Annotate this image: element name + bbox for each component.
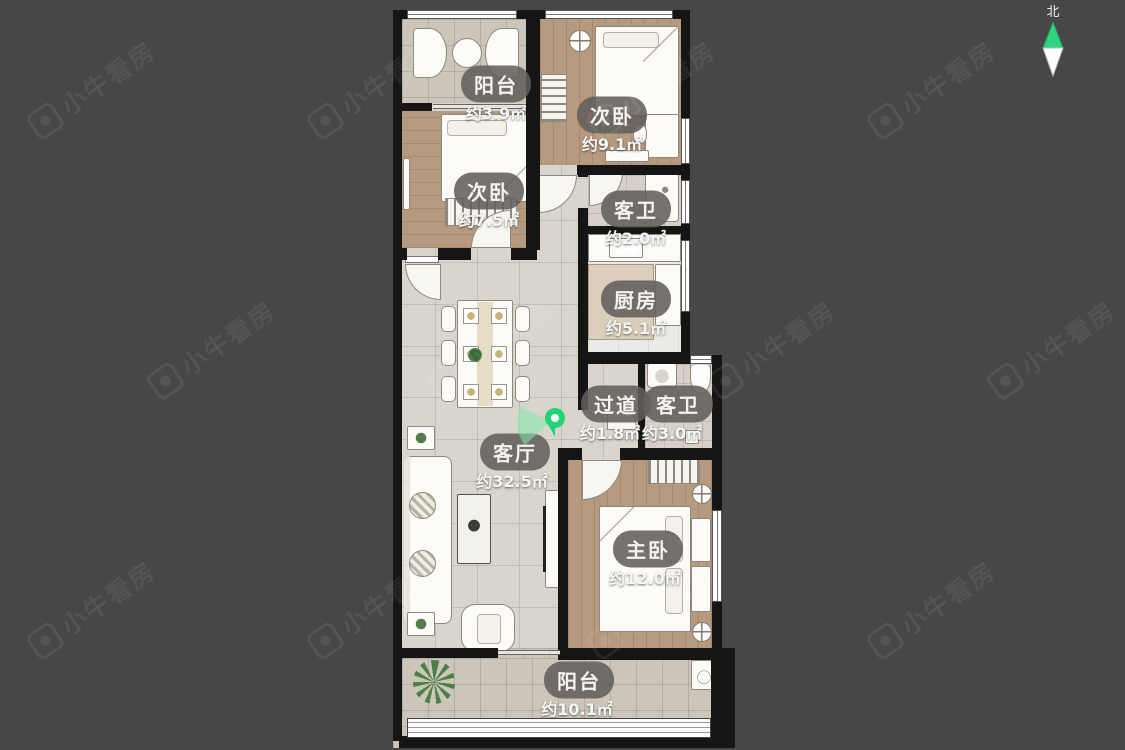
watermark-logo-icon bbox=[305, 620, 347, 662]
position-pin[interactable] bbox=[513, 393, 577, 457]
wall bbox=[526, 10, 540, 250]
room-label-bedroom-top: 次卧 bbox=[577, 97, 647, 134]
watermark-logo-icon bbox=[25, 620, 67, 662]
room-label-bath-top: 客卫 bbox=[601, 191, 671, 228]
watermark-logo-icon bbox=[145, 360, 187, 402]
window bbox=[681, 240, 690, 312]
plate-icon bbox=[491, 384, 507, 400]
watermark: 小牛看房 bbox=[143, 292, 282, 405]
cushion-icon bbox=[409, 492, 436, 519]
room-area-bath-top: 约2.0㎡ bbox=[606, 225, 666, 249]
wall bbox=[558, 648, 722, 660]
basin-icon bbox=[452, 38, 482, 68]
window bbox=[681, 180, 690, 224]
watermark: 小牛看房 bbox=[23, 32, 162, 145]
watermark-text: 小牛看房 bbox=[1013, 292, 1122, 383]
wall bbox=[511, 248, 537, 260]
blanket-fold-icon bbox=[643, 26, 679, 62]
wall bbox=[438, 248, 471, 260]
bookshelf-icon bbox=[541, 74, 567, 122]
wall bbox=[558, 460, 568, 658]
wall bbox=[620, 448, 722, 460]
watermark-text: 小牛看房 bbox=[53, 32, 162, 123]
room-area-balcony-top: 约3.9㎡ bbox=[466, 100, 526, 124]
balcony-window-band bbox=[407, 718, 711, 738]
tv-icon bbox=[543, 506, 546, 572]
view-cone-icon bbox=[517, 407, 551, 445]
wall-shelf-icon bbox=[403, 158, 410, 210]
lounge-cushion-icon bbox=[477, 614, 501, 644]
washbasin-icon bbox=[647, 362, 677, 388]
watermark-logo-icon bbox=[865, 620, 907, 662]
watermark: 小牛看房 bbox=[983, 292, 1122, 405]
room-label-balcony-bottom: 阳台 bbox=[544, 662, 614, 699]
nightstand-icon bbox=[691, 518, 711, 562]
window bbox=[712, 510, 722, 602]
room-label-balcony-top: 阳台 bbox=[461, 66, 531, 103]
watermark-logo-icon bbox=[985, 360, 1027, 402]
watermark-text: 小牛看房 bbox=[893, 552, 1002, 643]
floorplan-screen: 阳台 约3.9㎡ 次卧 约9.1㎡ 次卧 约7.5㎡ 客卫 约2.0㎡ 厨房 约… bbox=[0, 0, 1125, 750]
north-label: 北 bbox=[1036, 6, 1070, 20]
plate-icon bbox=[463, 308, 479, 324]
washer-icon bbox=[413, 28, 447, 78]
wall bbox=[577, 165, 690, 175]
room-area-bath-mid: 约3.0㎡ bbox=[642, 420, 702, 444]
ac-unit-icon bbox=[692, 622, 712, 642]
room-label-bath-mid: 客卫 bbox=[643, 386, 713, 423]
sliding-door bbox=[498, 650, 560, 655]
wall bbox=[402, 648, 498, 658]
plant-pot-icon bbox=[407, 426, 435, 450]
room-area-bedroom-left: 约7.5㎡ bbox=[459, 207, 519, 231]
chair-icon bbox=[515, 340, 530, 366]
ac-unit-icon bbox=[692, 484, 712, 504]
room-area-master: 约12.0㎡ bbox=[609, 565, 680, 589]
coffee-table-icon bbox=[457, 494, 491, 564]
wall bbox=[711, 648, 735, 748]
room-area-hallway: 约1.8㎡ bbox=[580, 420, 640, 444]
sofa-icon bbox=[404, 456, 452, 624]
floorplan-canvas[interactable]: 阳台 约3.9㎡ 次卧 约9.1㎡ 次卧 约7.5㎡ 客卫 约2.0㎡ 厨房 约… bbox=[393, 10, 738, 748]
chair-icon bbox=[515, 306, 530, 332]
watermark-text: 小牛看房 bbox=[173, 292, 282, 383]
ac-unit-icon bbox=[569, 30, 591, 52]
wall bbox=[578, 165, 588, 177]
wall bbox=[402, 103, 432, 111]
plate-icon bbox=[463, 384, 479, 400]
watermark-logo-icon bbox=[865, 100, 907, 142]
room-area-living: 约32.5㎡ bbox=[476, 468, 547, 492]
room-area-kitchen: 约5.1㎡ bbox=[606, 315, 666, 339]
plant-pot-icon bbox=[407, 612, 435, 636]
watermark: 小牛看房 bbox=[863, 552, 1002, 665]
window bbox=[681, 118, 690, 164]
room-area-bedroom-top: 约9.1㎡ bbox=[582, 131, 642, 155]
chair-icon bbox=[441, 340, 456, 366]
plate-icon bbox=[491, 346, 507, 362]
cushion-icon bbox=[409, 550, 436, 577]
watermark-logo-icon bbox=[25, 100, 67, 142]
wall bbox=[578, 352, 690, 364]
room-label-hallway: 过道 bbox=[581, 386, 651, 423]
watermark-text: 小牛看房 bbox=[53, 552, 162, 643]
north-arrow-icon bbox=[1038, 20, 1068, 78]
centerpiece-plant-icon bbox=[468, 348, 482, 362]
north-indicator: 北 bbox=[1036, 6, 1070, 82]
watermark: 小牛看房 bbox=[863, 32, 1002, 145]
watermark: 小牛看房 bbox=[23, 552, 162, 665]
desk-icon bbox=[645, 114, 679, 158]
chair-icon bbox=[441, 306, 456, 332]
window bbox=[407, 10, 517, 19]
watermark-text: 小牛看房 bbox=[893, 32, 1002, 123]
window bbox=[545, 10, 673, 19]
room-label-kitchen: 厨房 bbox=[601, 281, 671, 318]
room-label-bedroom-left: 次卧 bbox=[454, 173, 524, 210]
window bbox=[690, 355, 712, 364]
plate-icon bbox=[491, 308, 507, 324]
wall bbox=[393, 10, 402, 741]
nightstand-icon bbox=[691, 566, 711, 612]
wardrobe-icon bbox=[648, 456, 700, 484]
watermark-logo-icon bbox=[305, 100, 347, 142]
watermark-text: 小牛看房 bbox=[733, 292, 842, 383]
wall bbox=[393, 248, 407, 260]
chair-icon bbox=[441, 376, 456, 402]
door-leaf bbox=[405, 256, 439, 263]
room-area-balcony-bottom: 约10.1㎡ bbox=[541, 696, 612, 720]
room-label-master: 主卧 bbox=[613, 531, 683, 568]
plant-icon bbox=[413, 660, 455, 704]
